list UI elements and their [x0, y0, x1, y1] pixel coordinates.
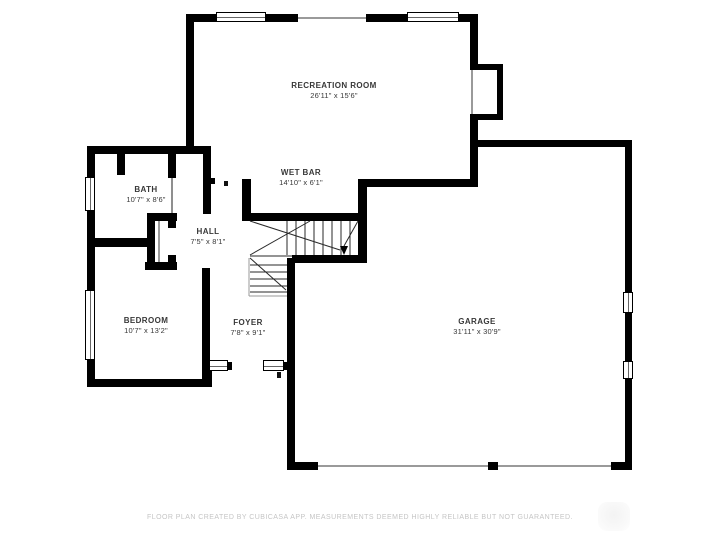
entry-door-opening — [232, 362, 263, 370]
bath-door-line — [171, 178, 173, 213]
room-dims: 10'7" x 13'2" — [124, 326, 169, 336]
window-rec-top-2 — [407, 12, 459, 22]
floor-plan: RECREATION ROOM 26'11" x 15'6" WET BAR 1… — [0, 0, 720, 540]
wall-bath-right-stub — [168, 153, 176, 178]
wall-rec-right-lower — [470, 114, 478, 186]
door-jamb-stub — [210, 178, 215, 184]
staircase — [243, 216, 369, 300]
bay-opening-line — [471, 70, 473, 114]
room-name: GARAGE — [453, 317, 501, 327]
wall-bay-right — [497, 64, 503, 120]
wall-bedroom-bottom — [87, 379, 212, 387]
entry-door-tick — [277, 372, 281, 378]
wall-rec-bottom — [365, 179, 478, 187]
room-label-recreation: RECREATION ROOM 26'11" x 15'6" — [291, 81, 376, 101]
room-name: HALL — [191, 227, 226, 237]
wall-closet-stub-top — [168, 213, 176, 228]
window-bath-left — [85, 177, 95, 211]
garage-door-line-1 — [318, 465, 488, 467]
window-foyer-2 — [263, 360, 284, 371]
wall-rec-left — [186, 14, 194, 154]
wall-bath-top — [87, 146, 208, 154]
wetbar-door-tick — [224, 181, 228, 186]
room-label-foyer: FOYER 7'8" x 9'1" — [231, 318, 266, 338]
window-bedroom-left — [85, 290, 95, 360]
slider-door-line — [298, 17, 366, 19]
window-foyer-1 — [209, 360, 228, 371]
room-dims: 14'10" x 6'1" — [279, 178, 323, 188]
wall-rec-right-upper — [470, 14, 478, 70]
wall-closet-stub-bottom — [168, 255, 176, 270]
room-label-bedroom: BEDROOM 10'7" x 13'2" — [124, 316, 169, 336]
room-dims: 31'11" x 30'9" — [453, 327, 501, 337]
wall-shower-stub — [117, 153, 125, 175]
window-rec-top-1 — [216, 12, 266, 22]
wall-bath-bedroom-divider — [87, 238, 155, 247]
room-name: FOYER — [231, 318, 266, 328]
room-name: BEDROOM — [124, 316, 169, 326]
garage-door-line-2 — [498, 465, 611, 467]
room-dims: 10'7" x 8'6" — [126, 195, 165, 205]
room-name: BATH — [126, 185, 165, 195]
room-label-garage: GARAGE 31'11" x 30'9" — [453, 317, 501, 337]
room-label-bath: BATH 10'7" x 8'6" — [126, 185, 165, 205]
cubicasa-watermark-icon — [598, 502, 630, 531]
room-dims: 7'8" x 9'1" — [231, 328, 266, 338]
window-garage-right-1 — [623, 292, 633, 313]
wall-bay-bottom — [477, 114, 503, 120]
room-name: WET BAR — [279, 168, 323, 178]
room-dims: 7'5" x 8'1" — [191, 237, 226, 247]
room-name: RECREATION ROOM — [291, 81, 376, 91]
room-dims: 26'11" x 15'6" — [291, 91, 376, 101]
wall-garage-top — [470, 140, 632, 147]
room-label-wetbar: WET BAR 14'10" x 6'1" — [279, 168, 323, 188]
window-garage-right-2 — [623, 361, 633, 379]
room-label-hall: HALL 7'5" x 8'1" — [191, 227, 226, 247]
closet-rod-line — [158, 221, 160, 262]
